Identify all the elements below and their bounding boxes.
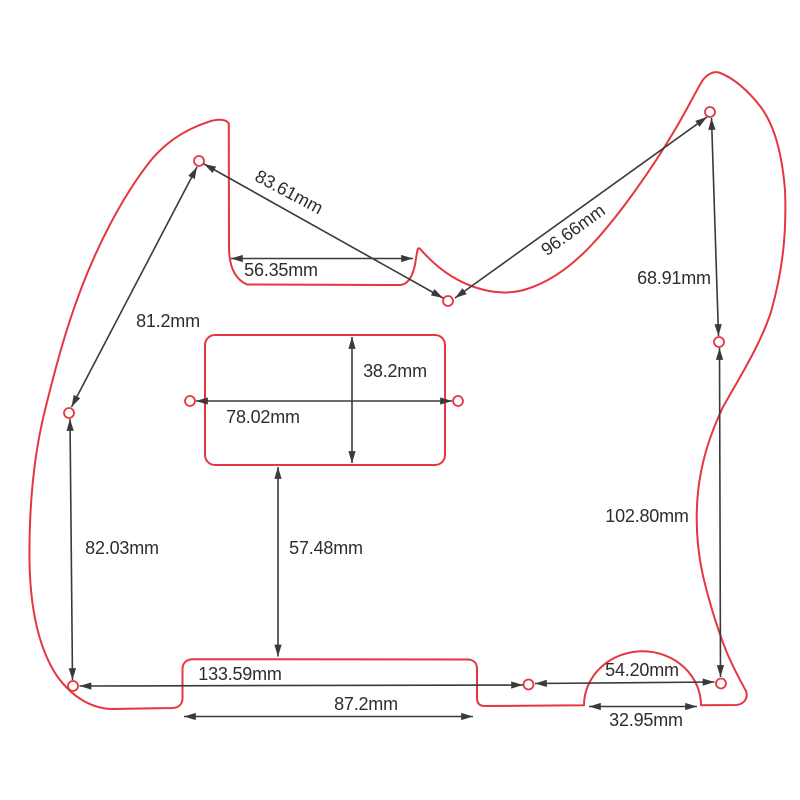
pickup-cutout	[205, 335, 445, 465]
dimension-line-68-91	[712, 118, 719, 336]
dimension-line-133-59	[80, 685, 524, 686]
dimension-label-81-2: 81.2mm	[136, 311, 200, 331]
dimension-label-83-61: 83.61mm	[252, 166, 326, 218]
screw-hole-bottom-left	[68, 681, 78, 691]
screw-hole-pickup-right	[453, 396, 463, 406]
dimension-label-38-2: 38.2mm	[363, 361, 427, 381]
screw-hole-top-left	[194, 156, 204, 166]
dimension-label-133-59: 133.59mm	[198, 664, 281, 684]
dimension-line-54-20	[535, 682, 715, 684]
dimension-label-87-2: 87.2mm	[334, 694, 398, 714]
screw-hole-top-right	[705, 107, 715, 117]
screw-hole-left-edge	[64, 408, 74, 418]
dimension-labels: 83.61mm 56.35mm 96.66mm 68.91mm 81.2mm 3…	[85, 166, 711, 730]
dimension-label-57-48: 57.48mm	[289, 538, 363, 558]
screw-hole-pickup-left	[185, 396, 195, 406]
screw-hole-middle-notch	[443, 296, 453, 306]
dimension-line-102-80	[720, 348, 721, 677]
dimension-label-96-66: 96.66mm	[537, 200, 608, 259]
screw-holes	[64, 107, 726, 691]
dimension-label-54-20: 54.20mm	[605, 660, 679, 680]
diagram-canvas: 83.61mm 56.35mm 96.66mm 68.91mm 81.2mm 3…	[0, 0, 800, 800]
pickguard-dimension-drawing: 83.61mm 56.35mm 96.66mm 68.91mm 81.2mm 3…	[0, 0, 800, 800]
screw-hole-right-side	[714, 337, 724, 347]
dimension-label-32-95: 32.95mm	[609, 710, 683, 730]
dimension-label-102-80: 102.80mm	[605, 506, 688, 526]
dimension-line-83-61	[204, 164, 443, 298]
dimension-line-81-2	[72, 167, 198, 407]
dimension-line-82-03	[70, 419, 73, 680]
dimension-label-68-91: 68.91mm	[637, 268, 711, 288]
dimension-label-82-03: 82.03mm	[85, 538, 159, 558]
dimension-label-78-02: 78.02mm	[226, 407, 300, 427]
pickguard-outline	[29, 72, 785, 709]
screw-hole-bottom-middle	[524, 680, 534, 690]
dimension-label-56-35: 56.35mm	[244, 260, 318, 280]
screw-hole-bottom-right	[716, 679, 726, 689]
